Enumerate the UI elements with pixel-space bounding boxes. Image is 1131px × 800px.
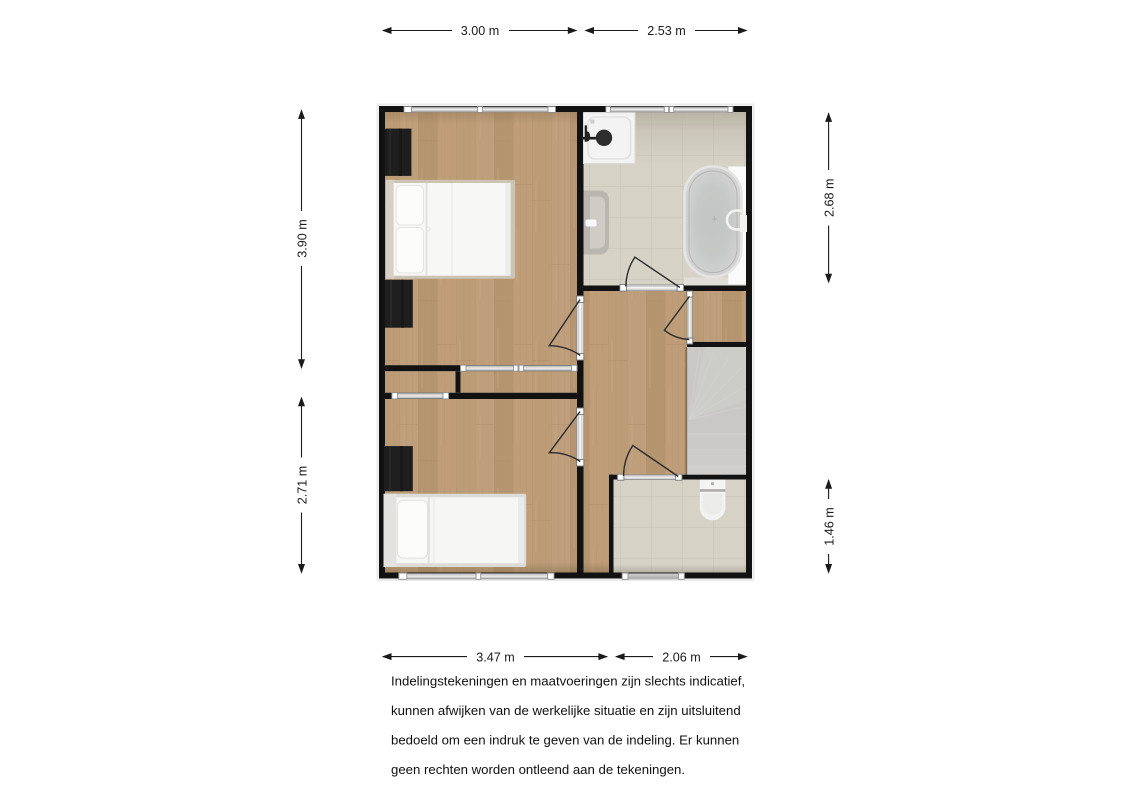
svg-text:2.53 m: 2.53 m [647, 24, 686, 38]
svg-text:geen rechten worden ontleend a: geen rechten worden ontleend aan de teke… [391, 762, 685, 777]
svg-text:3.90 m: 3.90 m [296, 219, 310, 258]
svg-text:bedoeld om een indruk te geven: bedoeld om een indruk te geven van de in… [391, 732, 739, 747]
svg-text:kunnen afwijken van de werkeli: kunnen afwijken van de werkelijke situat… [391, 703, 741, 718]
svg-text:1.46 m: 1.46 m [823, 507, 837, 546]
svg-text:3.00 m: 3.00 m [461, 24, 500, 38]
svg-text:2.06 m: 2.06 m [662, 650, 701, 664]
svg-text:2.68 m: 2.68 m [823, 179, 837, 218]
svg-text:Indelingstekeningen en maatvoe: Indelingstekeningen en maatvoeringen zij… [391, 673, 745, 688]
svg-text:2.71 m: 2.71 m [296, 466, 310, 505]
svg-text:3.47 m: 3.47 m [476, 650, 515, 664]
